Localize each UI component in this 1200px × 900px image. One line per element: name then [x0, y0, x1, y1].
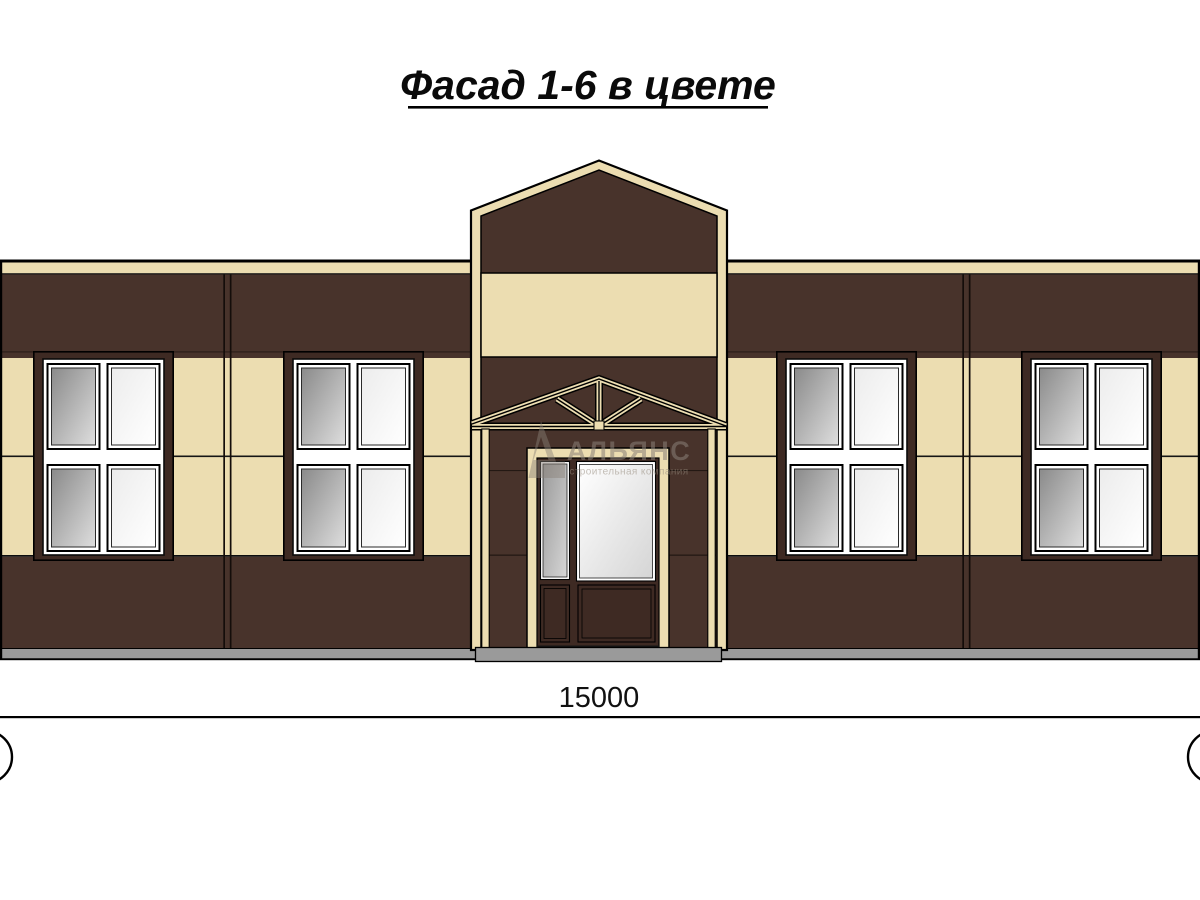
dimension-line [0, 716, 1200, 718]
panel-seam-line [962, 275, 964, 649]
drawing-title: Фасад 1-6 в цвете [400, 62, 776, 109]
truss-kingpost-pad [594, 421, 604, 430]
porch-post-right [708, 429, 715, 649]
window-4 [1022, 352, 1161, 560]
porch-post-left [482, 429, 489, 649]
door-leaf-glass [580, 465, 653, 579]
window-2 [284, 352, 423, 560]
door-sidelight-glass [543, 464, 567, 577]
window-1 [34, 352, 173, 560]
axis-bubble-left [0, 731, 12, 783]
tower-cream-band [481, 273, 717, 357]
watermark-tagline: строительная компания [569, 467, 688, 478]
dimension: 15000 [0, 682, 1200, 783]
page-title: Фасад 1-6 в цвете [400, 62, 776, 108]
window-3 [777, 352, 916, 560]
dimension-value: 15000 [559, 682, 640, 714]
corner-line-left [0, 262, 2, 660]
panel-seam-line [969, 275, 971, 649]
panel-seam-line [223, 275, 225, 649]
facade-drawing: Фасад 1-6 в цвете [0, 0, 1200, 900]
elevation-sheet: Фасад 1-6 в цвете [0, 0, 1200, 900]
panel-seam-line [230, 275, 232, 649]
title-underline [408, 106, 768, 109]
watermark-brand: АЛЬЯНС [567, 436, 692, 466]
porch-step [476, 648, 722, 662]
entrance-door [527, 448, 669, 649]
axis-bubble-right [1188, 731, 1200, 783]
